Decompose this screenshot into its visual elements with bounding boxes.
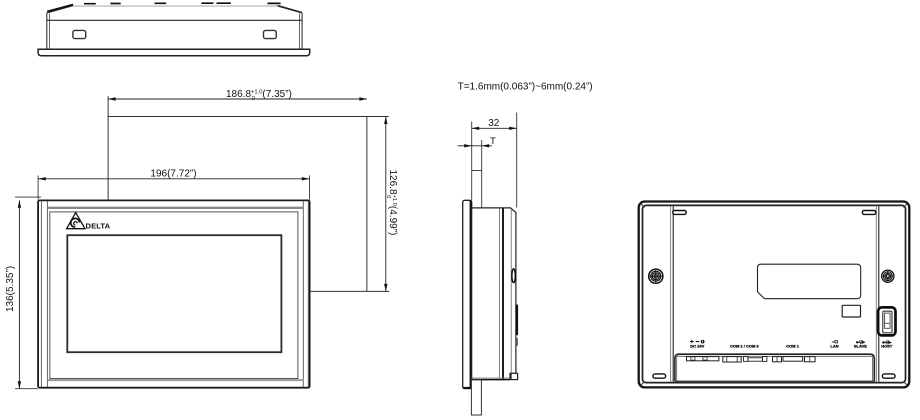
svg-text:186.8+1.00(7.35”): 186.8+1.00(7.35”) — [226, 89, 292, 102]
svg-text:LAN: LAN — [830, 343, 838, 348]
svg-text:DC 24V: DC 24V — [690, 343, 704, 348]
svg-text:196(7.72”): 196(7.72”) — [150, 169, 196, 180]
svg-text:COM 1: COM 1 — [786, 343, 799, 348]
svg-text:126.8+1.00(4.99”): 126.8+1.00(4.99”) — [385, 170, 398, 236]
svg-text:DELTA: DELTA — [86, 221, 111, 230]
svg-text:136(5.35”): 136(5.35”) — [5, 266, 16, 312]
svg-text:HOST: HOST — [881, 343, 893, 348]
svg-text:T: T — [490, 136, 496, 147]
svg-text:COM 2 / COM 3: COM 2 / COM 3 — [730, 343, 759, 348]
svg-text:T=1.6mm(0.063”)~6mm(0.24”): T=1.6mm(0.063”)~6mm(0.24”) — [458, 82, 593, 93]
svg-text:32: 32 — [488, 118, 500, 129]
svg-text:SLAVE: SLAVE — [854, 343, 867, 348]
